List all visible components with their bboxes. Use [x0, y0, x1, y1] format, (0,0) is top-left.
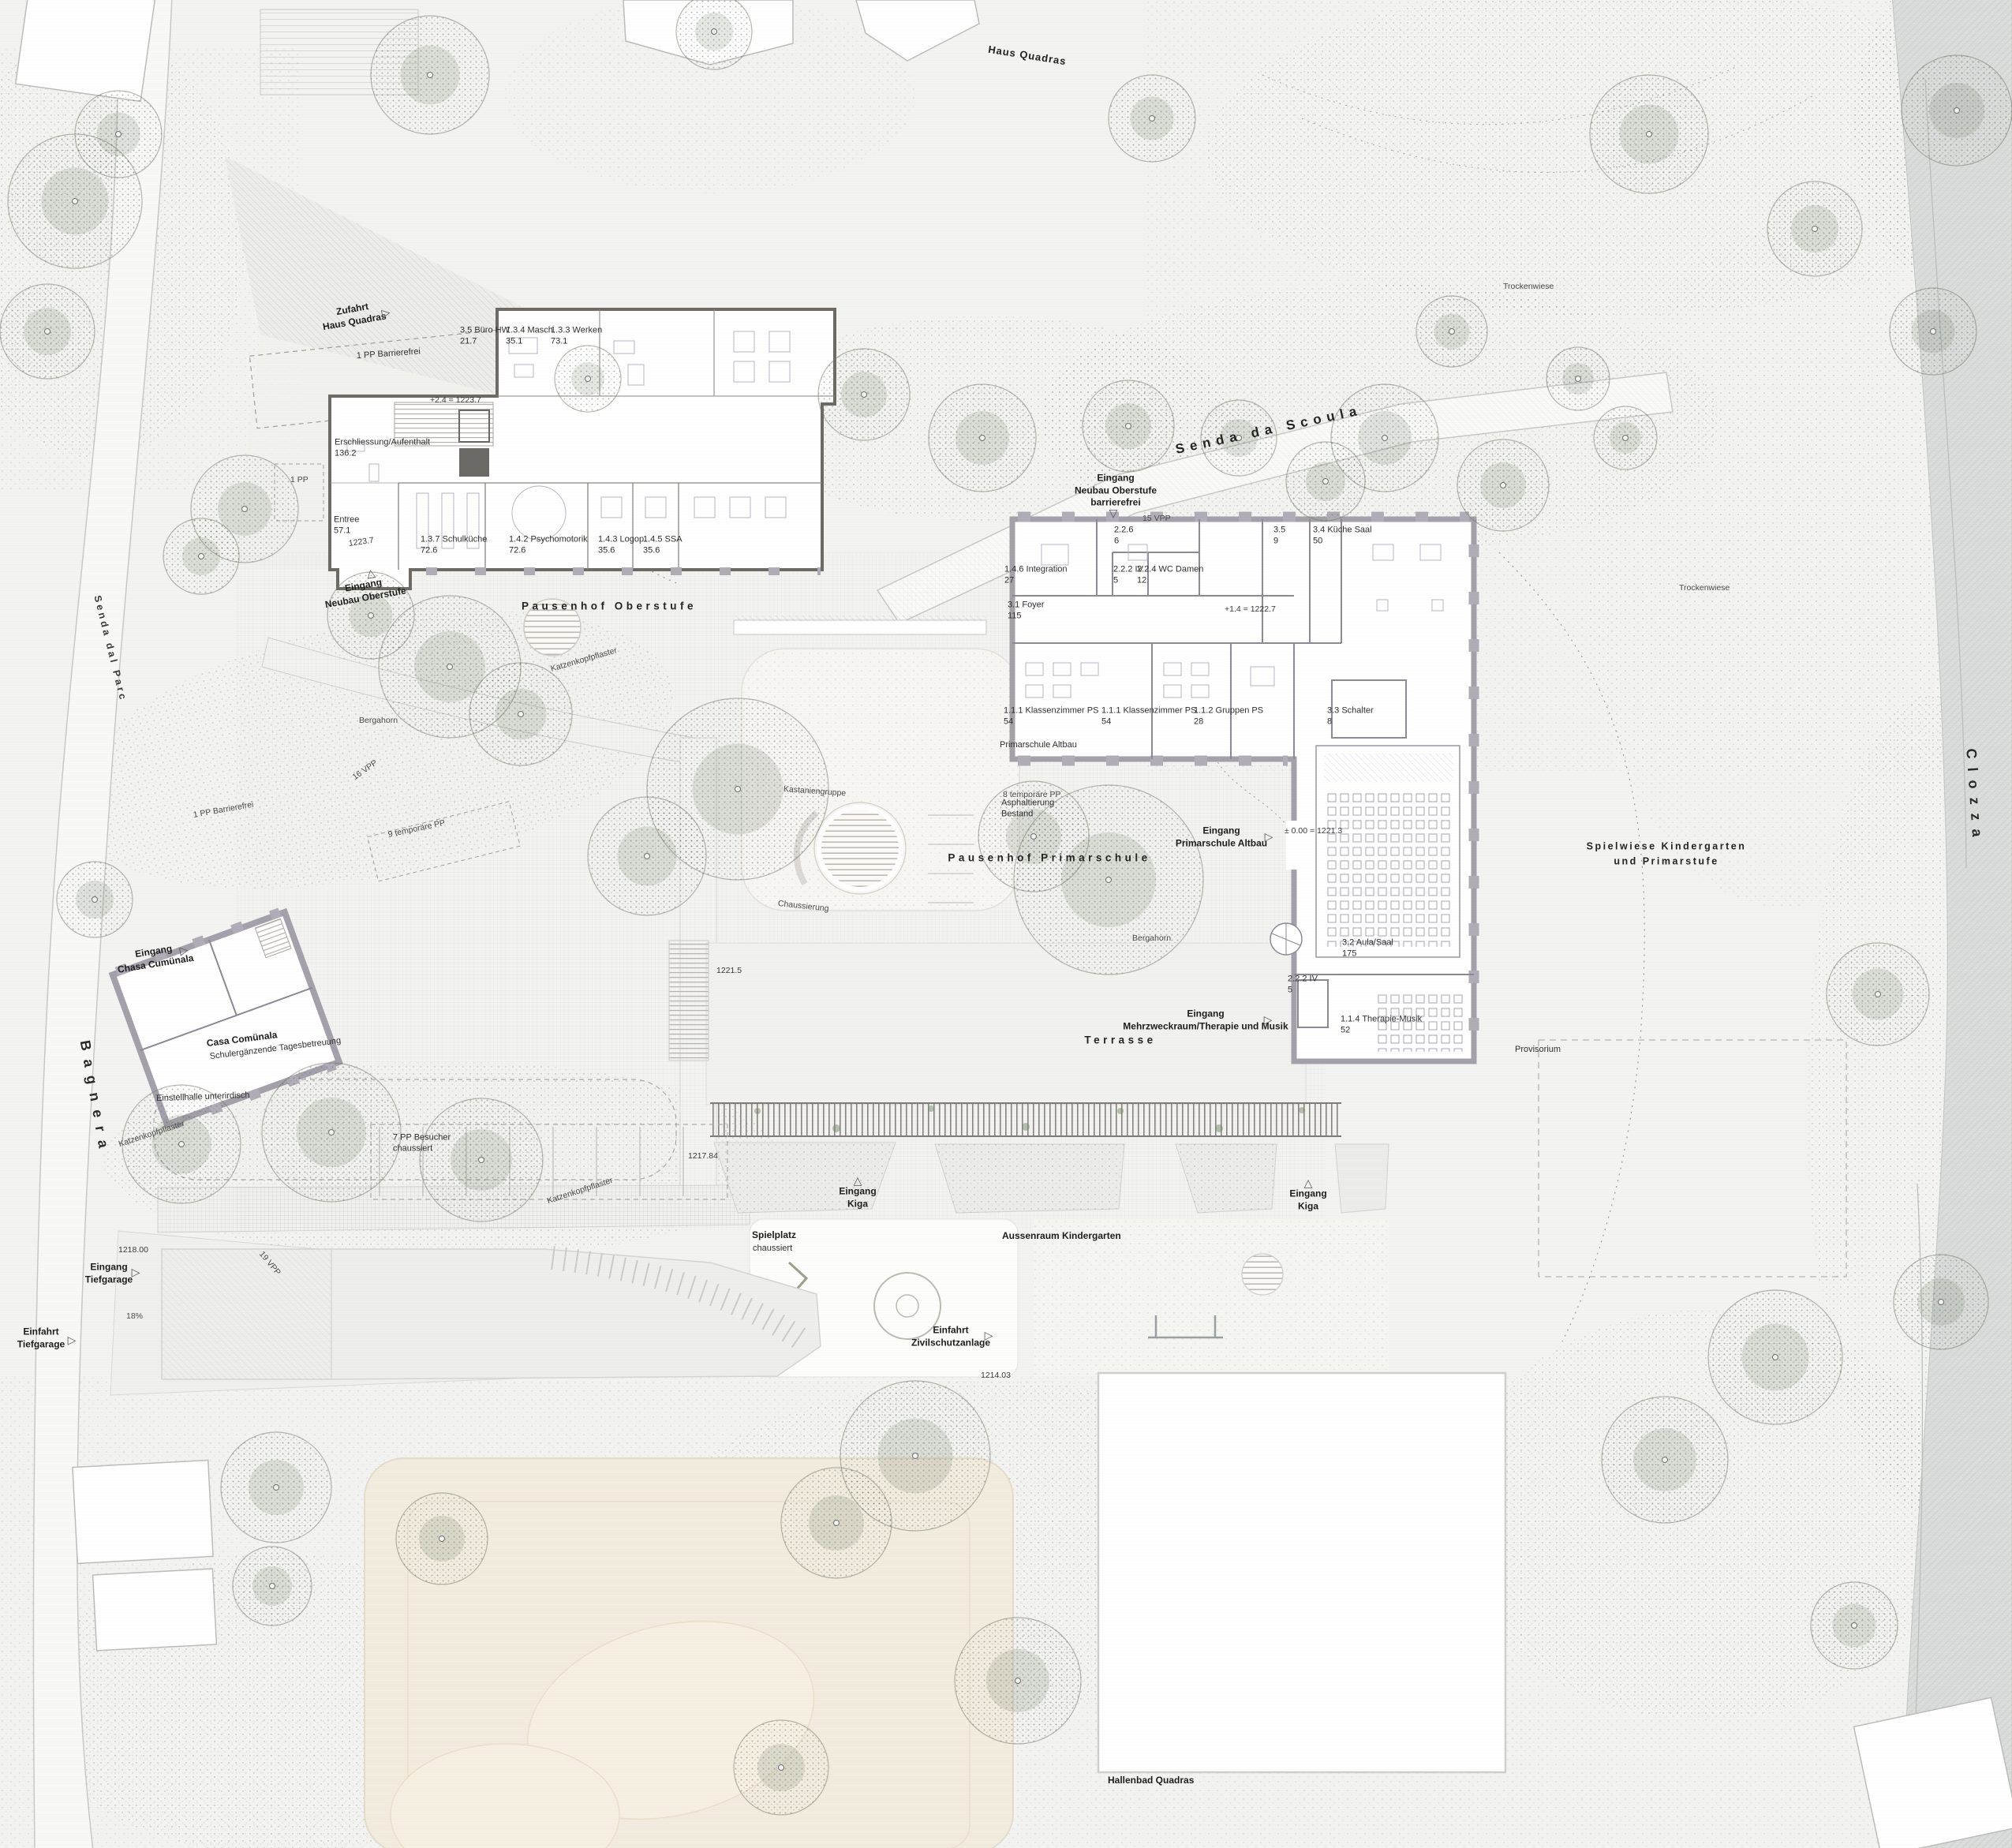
eingang-primarschule-altbau: Eingang Primarschule Altbau [1176, 825, 1267, 849]
room-35: 3.5 9 [1273, 525, 1285, 547]
zufahrt-haus-quadras: Zufahrt Haus Quadras [320, 298, 387, 334]
arrow-tiefgarage-icon: ▷ [132, 1266, 140, 1278]
clozza: Clozza [1962, 748, 1986, 846]
trockenwiese-ost: Trockenwiese [1679, 583, 1730, 593]
elev-1-4: +1.4 = 1222.7 [1225, 604, 1276, 614]
room-entree: Entree 57.1 [334, 514, 359, 537]
room-gruppen: 1.1.2 Gruppen PS 28 [1194, 705, 1263, 728]
senda-da-scoula: Senda da Scoula [1174, 402, 1363, 458]
aussenraum-kindergarten: Aussenraum Kindergarten [1002, 1230, 1121, 1243]
arrow-eingang-neubau-icon: △ [365, 567, 376, 579]
vpp-16: 16 VPP [351, 758, 380, 782]
room-werken: 1.3.3 Werken 73.1 [551, 325, 602, 347]
pausenhof-oberstufe: Pausenhof Oberstufe [522, 600, 697, 612]
hallenbad-quadras: Hallenbad Quadras [1108, 1775, 1194, 1787]
asphaltierung-bestand: Asphaltierung Bestand [1001, 798, 1054, 820]
room-klassenzimmer-2: 1.1.1 Klassenzimmer PS 54 [1101, 705, 1196, 728]
bergahorn-west: Bergahorn [359, 716, 398, 725]
room-222-iv-b: 2.2.2 IV 5 [1288, 974, 1318, 996]
bagnera: Bagnera [77, 1039, 114, 1158]
arrow-mehrzweckraum-icon: ▷ [1264, 1014, 1273, 1025]
pp-7-besucher: 7 PP Besucher chaussiert [393, 1132, 451, 1154]
arrow-chasa-icon: ▷ [179, 944, 189, 956]
room-foyer: 3.1 Foyer 115 [1008, 600, 1044, 622]
einfahrt-zivilschutzanlage: Einfahrt Zivilschutzanlage [911, 1324, 990, 1349]
room-wc-damen: 2.2.4 WC Damen 12 [1137, 564, 1203, 586]
kastaniengruppe: Kastaniengruppe [783, 784, 847, 799]
elev-0-00: ± 0.00 = 1221.3 [1285, 826, 1342, 836]
einfahrt-tiefgarage: Einfahrt Tiefgarage [17, 1326, 65, 1350]
einstellhalle: Einstellhalle unterirdisch [156, 1090, 250, 1105]
pp-barrierefrei-west: 1 PP Barrierefrei [193, 800, 254, 820]
katzenkopfpflaster-sued: Katzenkopfpflaster [118, 1119, 185, 1149]
arrow-zufahrt-icon: ▷ [380, 306, 391, 319]
room-buero-hw: 3.5 Büro HW 21.7 [460, 325, 510, 347]
room-aula-saal: 3.2 Aula/Saal 175 [1342, 937, 1393, 960]
eingang-neubau-oberstufe: Eingang Neubau Oberstufe [322, 573, 407, 612]
room-masch: 1.3.4 Masch. 35.1 [506, 325, 555, 347]
eingang-tiefgarage: Eingang Tiefgarage [85, 1261, 133, 1285]
arrow-zivilschutz-icon: ▷ [985, 1330, 993, 1341]
trockenwiese-nord: Trockenwiese [1503, 282, 1554, 291]
terrasse: Terrasse [1084, 1034, 1156, 1046]
elev-1217-84: 1217.84 [688, 1151, 718, 1161]
label-layer: Zufahrt Haus QuadrasHaus Quadras1 PP Bar… [0, 0, 2012, 1848]
vpp-15: 15 VPP [1143, 514, 1171, 523]
room-therapie-musik: 1.1.4 Therapie-Musik 52 [1341, 1014, 1422, 1036]
room-psychomotorik: 1.4.2 Psychomotorik 72.6 [509, 534, 588, 556]
eingang-barrierefrei: Eingang Neubau Oberstufe barrierefrei [1075, 473, 1157, 510]
vpp-19: 19 VPP [257, 1250, 282, 1278]
temp-pp-9: 9 temporäre PP [387, 818, 446, 840]
spielplatz-sub: chaussiert [753, 1244, 792, 1255]
elev-1214-03: 1214.03 [981, 1371, 1011, 1380]
elev-1218-00: 1218.00 [118, 1245, 148, 1255]
provisorium: Provisorium [1515, 1045, 1561, 1056]
spielplatz: Spielplatz [752, 1229, 796, 1242]
katzenkopfpflaster-mitte: Katzenkopfpflaster [546, 1176, 614, 1206]
room-kueche-saal: 3.4 Küche Saal 50 [1313, 525, 1372, 547]
pp-barrierefrei-nord: 1 PP Barrierefrei [357, 346, 421, 361]
site-plan-quadras: Zufahrt Haus QuadrasHaus Quadras1 PP Bar… [0, 0, 2012, 1848]
spielwiese: Spielwiese Kindergarten und Primarstufe [1587, 839, 1747, 869]
room-226: 2.2.6 6 [1114, 525, 1133, 547]
eingang-kiga-ost: Eingang Kiga [1289, 1188, 1326, 1212]
room-logop: 1.4.3 Logop. 35.6 [598, 534, 646, 556]
arrow-einfahrt-tiefgarage-icon: ▷ [68, 1334, 77, 1345]
pausenhof-primarschule: Pausenhof Primarschule [948, 852, 1150, 864]
arrow-kiga-ost-icon: △ [1304, 1177, 1313, 1188]
arrow-barrierefrei-icon: ▽ [1109, 507, 1118, 518]
room-schulkueche: 1.3.7 Schulküche 72.6 [421, 534, 487, 556]
chaussierung: Chaussierung [777, 899, 829, 914]
room-schalter: 3.3 Schalter 8 [1327, 705, 1374, 728]
haus-quadras: Haus Quadras [987, 43, 1067, 67]
elev-2-4: +2.4 = 1223.7 [430, 395, 481, 405]
elev-1221-5: 1221.5 [716, 966, 742, 975]
room-integration: 1.4.6 Integration 27 [1004, 564, 1068, 586]
arrow-primarschule-icon: ▷ [1265, 831, 1273, 842]
katzenkopfpflaster-weg: Katzenkopfpflaster [550, 645, 619, 674]
arrow-kiga-west-icon: △ [854, 1175, 862, 1186]
primarschule-altbau: Primarschule Altbau [1000, 740, 1077, 751]
elev-1223-7: 1223.7 [348, 536, 374, 548]
room-ssa: 1.4.5 SSA 35.6 [643, 534, 683, 556]
bergahorn-ost: Bergahorn [1132, 933, 1171, 943]
pp-1: 1 PP [290, 475, 309, 484]
senda-dal-parc: Senda dal Parc [92, 594, 129, 703]
eingang-kiga-west: Eingang Kiga [839, 1185, 876, 1210]
room-klassenzimmer-1: 1.1.1 Klassenzimmer PS 54 [1004, 705, 1098, 728]
steigung-18: 18% [126, 1311, 143, 1321]
room-erschliessung: Erschliessung/Aufenthalt 136.2 [335, 437, 430, 459]
